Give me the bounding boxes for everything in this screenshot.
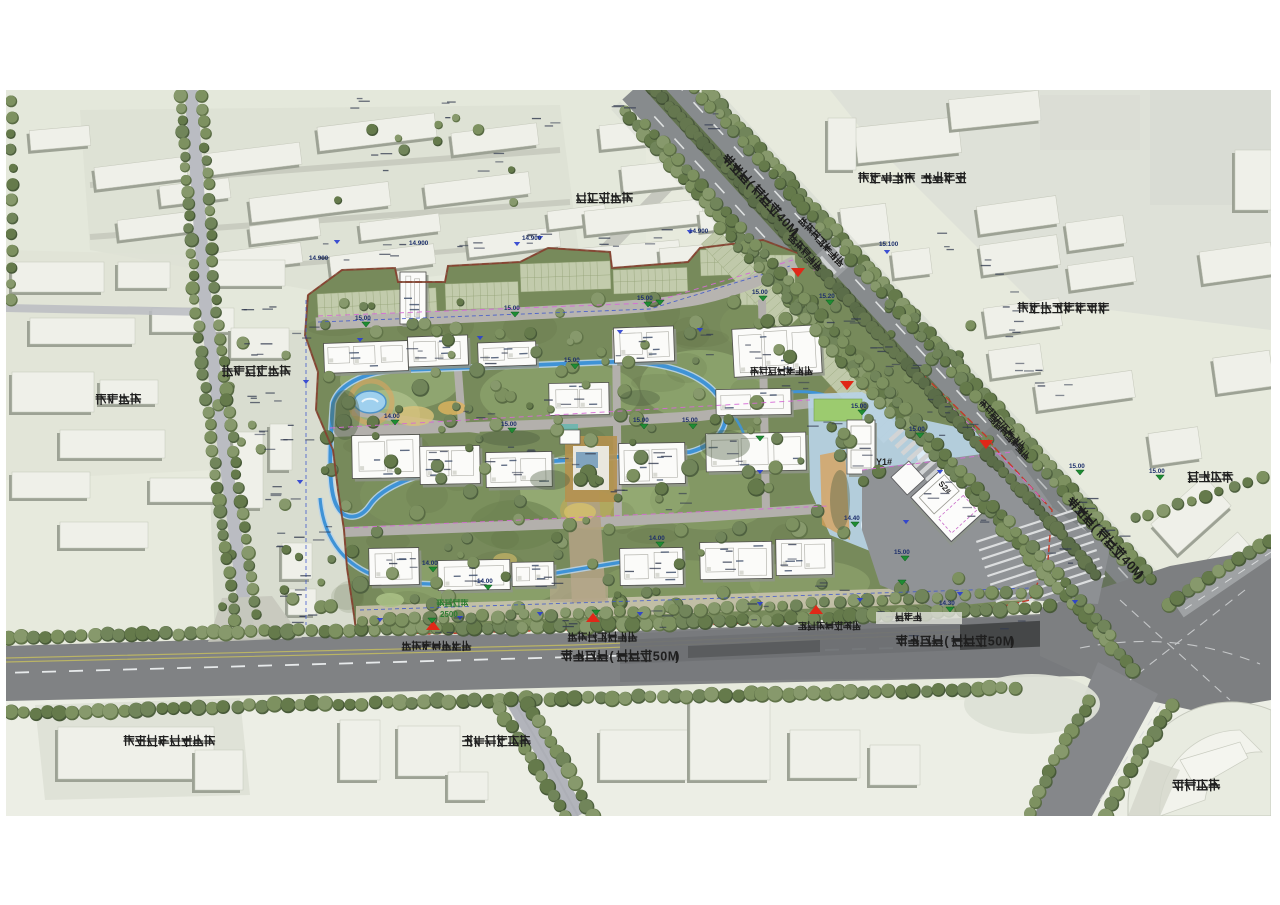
svg-text:5: 5 — [653, 649, 660, 663]
svg-text:14.00: 14.00 — [649, 535, 665, 542]
svg-text:14.00: 14.00 — [384, 413, 400, 420]
svg-text:15.20: 15.20 — [819, 293, 835, 300]
svg-text:15.00: 15.00 — [851, 403, 867, 410]
svg-text:14.40: 14.40 — [844, 515, 860, 522]
svg-text:15.00: 15.00 — [1069, 463, 1085, 470]
svg-text:15.00: 15.00 — [637, 295, 653, 302]
svg-text:15.00: 15.00 — [501, 421, 517, 428]
svg-text:5: 5 — [988, 634, 995, 648]
svg-text:15.00: 15.00 — [355, 315, 371, 322]
svg-text:2500: 2500 — [440, 610, 458, 619]
svg-text:15.00: 15.00 — [633, 417, 649, 424]
svg-text:14.900: 14.900 — [409, 240, 429, 247]
svg-text:): ) — [1010, 634, 1014, 648]
svg-text:0: 0 — [660, 649, 667, 663]
svg-text:14.900: 14.900 — [689, 228, 709, 235]
svg-text:15.00: 15.00 — [752, 289, 768, 296]
svg-text:15.00: 15.00 — [1149, 468, 1165, 475]
svg-text:15.00: 15.00 — [682, 417, 698, 424]
svg-text:): ) — [675, 649, 679, 663]
svg-text:14.00: 14.00 — [422, 560, 438, 567]
svg-text:15.00: 15.00 — [564, 357, 580, 364]
svg-text:15.00: 15.00 — [504, 305, 520, 312]
svg-text:Y1#: Y1# — [876, 457, 892, 467]
svg-text:0: 0 — [995, 634, 1002, 648]
svg-text:14.30: 14.30 — [939, 600, 955, 607]
svg-text:15.00: 15.00 — [909, 426, 925, 433]
svg-text:15.100: 15.100 — [879, 241, 899, 248]
svg-text:15.00: 15.00 — [894, 549, 910, 556]
